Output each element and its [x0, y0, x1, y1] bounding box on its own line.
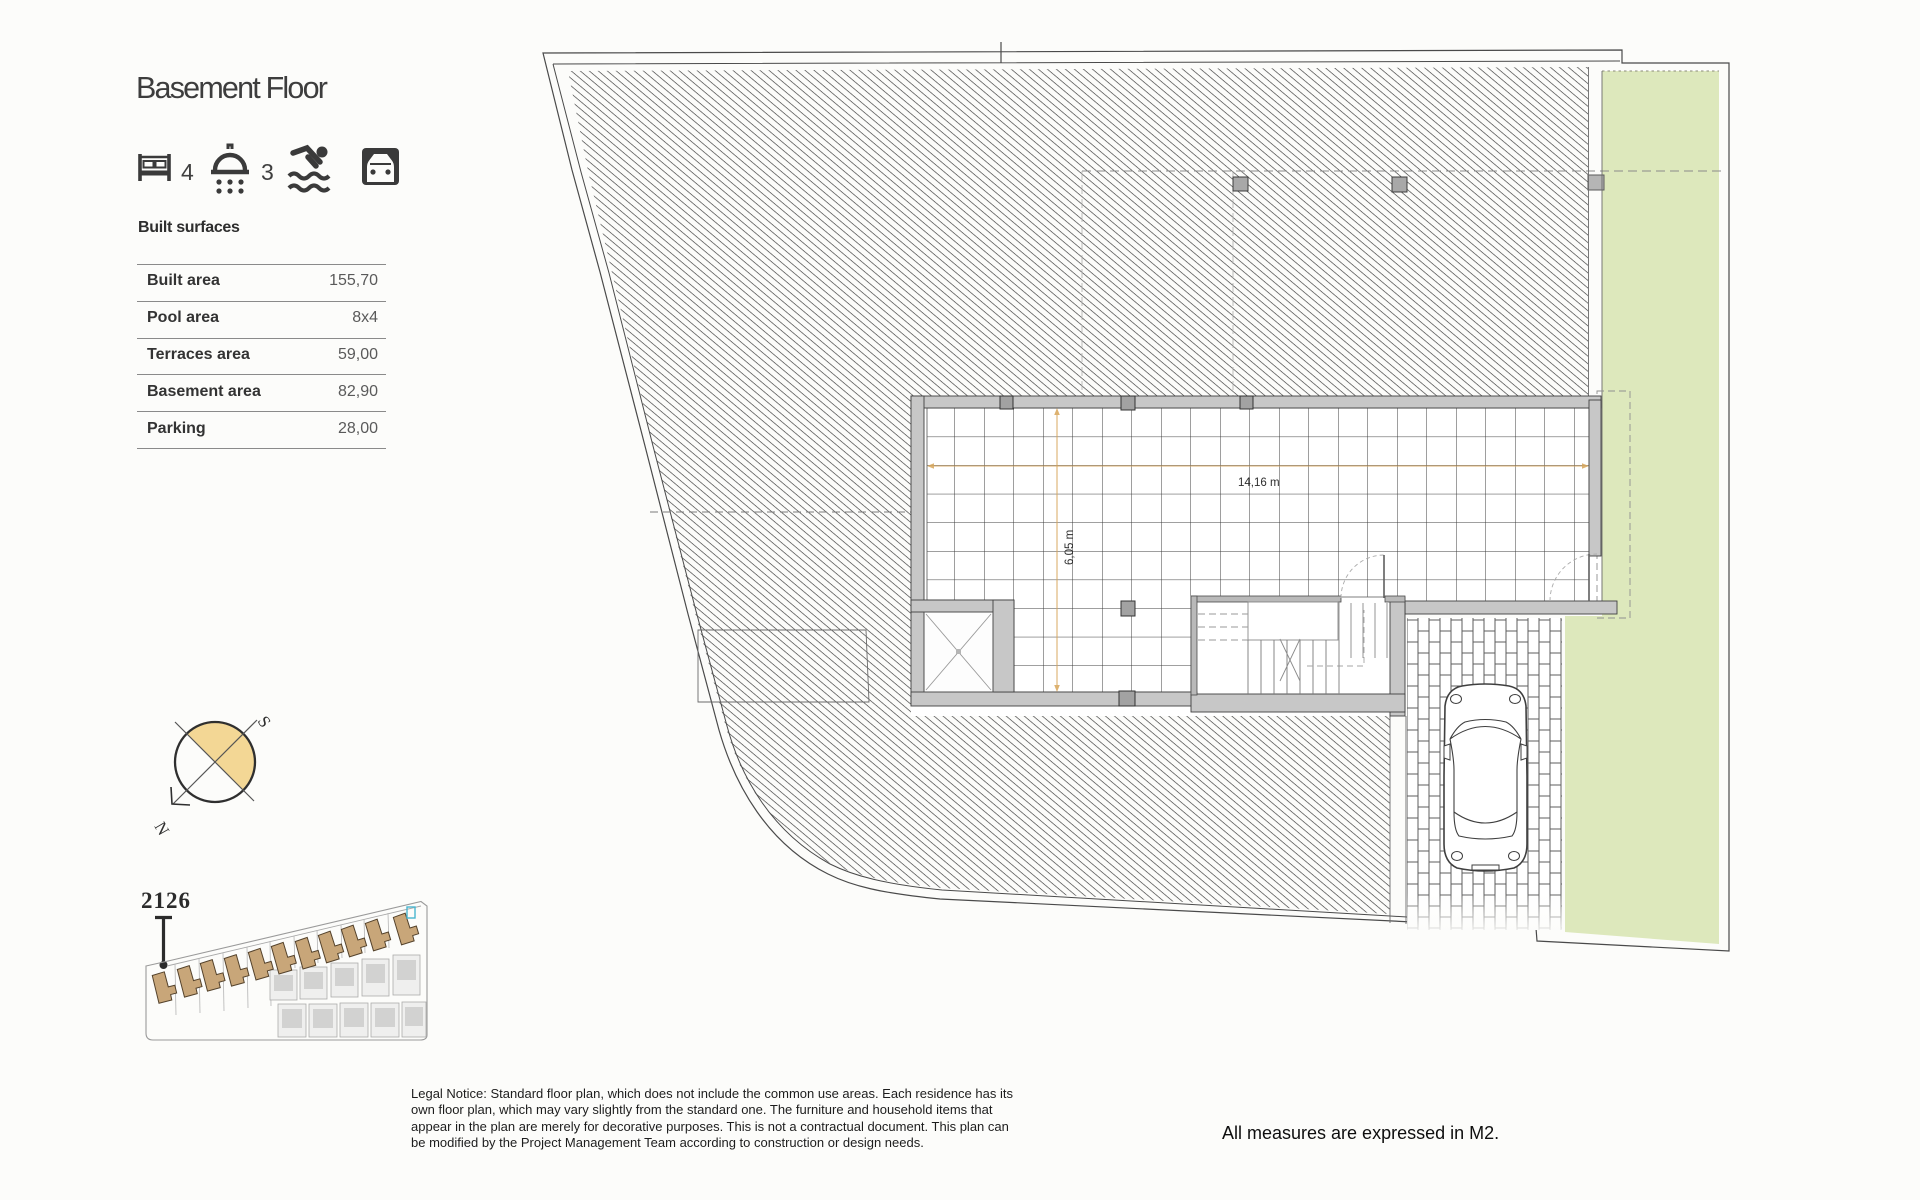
svg-text:3: 3	[261, 159, 274, 185]
svg-text:N: N	[151, 819, 174, 839]
svg-text:S: S	[254, 712, 275, 731]
svg-text:6,05 m: 6,05 m	[1064, 530, 1076, 565]
svg-text:14,16 m: 14,16 m	[1238, 477, 1280, 489]
svg-text:4: 4	[181, 159, 194, 185]
